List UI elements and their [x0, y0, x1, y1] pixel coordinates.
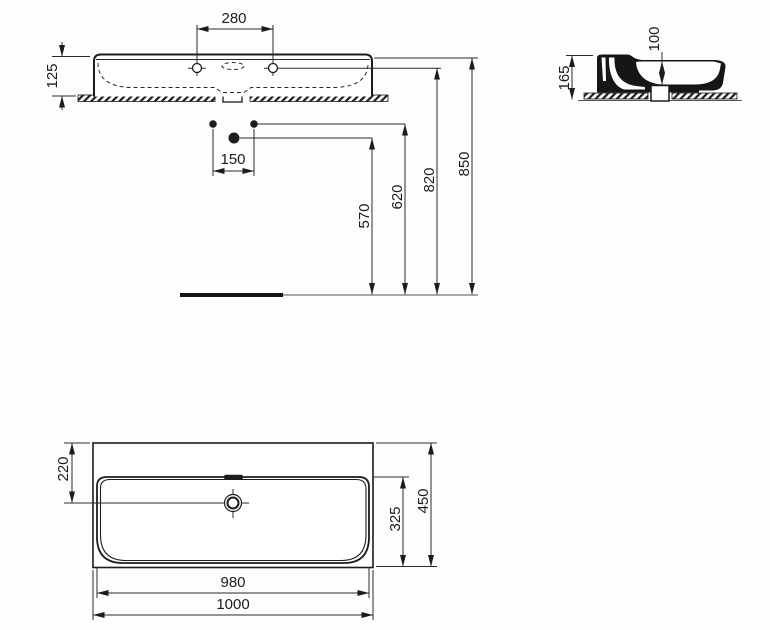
dim-label-150: 150 — [220, 151, 245, 168]
dim-label-125: 125 — [44, 63, 61, 88]
waste-outlet-point — [229, 133, 240, 144]
technical-drawing-canvas: 280 125 150 570 620 — [0, 0, 770, 630]
supply-point-right — [250, 120, 258, 128]
tap-hole-right — [269, 64, 278, 73]
dim-label-980: 980 — [220, 574, 245, 591]
dim-label-450: 450 — [415, 488, 432, 513]
basin-front-outline — [94, 55, 372, 97]
dim-label-165: 165 — [556, 65, 573, 90]
dim-label-220: 220 — [55, 456, 72, 481]
drain-inner-circle — [228, 498, 239, 509]
dim-label-280: 280 — [221, 10, 246, 27]
technical-drawing-page: 280 125 150 570 620 — [0, 0, 770, 630]
dim-label-325: 325 — [387, 506, 404, 531]
dim-label-850: 850 — [456, 151, 473, 176]
supply-point-left — [209, 120, 217, 128]
dim-label-100: 100 — [646, 26, 663, 51]
dim-label-820: 820 — [421, 167, 438, 192]
mount-hatch-left — [584, 93, 648, 99]
waste-trap-box — [651, 86, 669, 102]
dim-label-620: 620 — [389, 184, 406, 209]
mount-hatch-right — [672, 93, 737, 99]
overflow-slot — [224, 475, 243, 480]
dim-label-1000: 1000 — [216, 596, 249, 613]
dim-label-570: 570 — [356, 203, 373, 228]
tap-hole-left — [193, 64, 202, 73]
